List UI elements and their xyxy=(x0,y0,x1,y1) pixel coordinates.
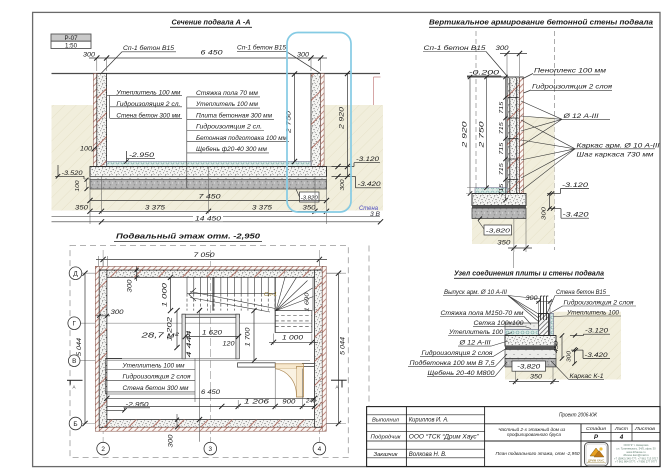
svg-text:Сетка 100х100: Сетка 100х100 xyxy=(474,320,525,327)
svg-text:А: А xyxy=(73,384,76,389)
svg-text:300: 300 xyxy=(496,45,510,52)
svg-text:3: 3 xyxy=(209,446,213,453)
svg-text:5 044: 5 044 xyxy=(341,336,347,355)
svg-text:Лист: Лист xyxy=(614,426,628,432)
svg-text:Узел соединения плиты и стены: Узел соединения плиты и стены подвала xyxy=(454,269,604,278)
svg-text:Стяжка пола 70 мм: Стяжка пола 70 мм xyxy=(196,91,258,97)
svg-text:2 920: 2 920 xyxy=(463,120,469,149)
svg-text:ООО “ТСК “Дрим Хаус”: ООО “ТСК “Дрим Хаус” xyxy=(409,434,480,441)
svg-text:-0.200: -0.200 xyxy=(469,69,500,76)
svg-text:2: 2 xyxy=(101,446,105,453)
svg-text:ДРИМ ХАУС: ДРИМ ХАУС xyxy=(588,459,604,463)
svg-text:4: 4 xyxy=(318,446,322,453)
svg-text:100: 100 xyxy=(80,145,93,152)
svg-text:План подвального этажа, отм -2: План подвального этажа, отм -2,950 xyxy=(496,451,580,457)
svg-text:120: 120 xyxy=(223,341,236,348)
svg-text:Листов: Листов xyxy=(634,426,656,432)
svg-text:4: 4 xyxy=(619,434,624,441)
svg-text:1 206: 1 206 xyxy=(244,398,270,405)
svg-text:Сп-1 бетон В15: Сп-1 бетон В15 xyxy=(237,45,287,52)
svg-text:Бетонная подготовка 100 мм: Бетонная подготовка 100 мм xyxy=(196,136,287,142)
svg-text:Стена бетон 300 мм: Стена бетон 300 мм xyxy=(123,386,189,392)
svg-text:7 050: 7 050 xyxy=(194,252,216,259)
svg-text:Подвальный этаж отм. -2,950: Подвальный этаж отм. -2,950 xyxy=(116,232,260,241)
svg-text:1 620: 1 620 xyxy=(202,329,223,336)
svg-text:Утеплитель 100: Утеплитель 100 xyxy=(448,329,504,336)
svg-text:-3.120: -3.120 xyxy=(356,156,379,163)
svg-text:14 450: 14 450 xyxy=(195,216,222,223)
svg-text:2 920: 2 920 xyxy=(339,106,346,130)
svg-text:Гидроизоляция 2 слоя: Гидроизоляция 2 слоя xyxy=(123,375,192,381)
svg-text:Подбетонка 100 мм В 7,5: Подбетонка 100 мм В 7,5 xyxy=(410,360,496,367)
svg-text:Стадия: Стадия xyxy=(586,426,606,432)
svg-text:Подрядчик: Подрядчик xyxy=(371,435,401,441)
svg-text:Ø 12 А-III: Ø 12 А-III xyxy=(562,113,599,120)
svg-text:Стена бетон В15: Стена бетон В15 xyxy=(556,289,607,296)
svg-text:715: 715 xyxy=(499,121,505,134)
svg-text:Выпуск арм. Ø 10 А-III: Выпуск арм. Ø 10 А-III xyxy=(444,289,507,296)
svg-text:300: 300 xyxy=(83,52,96,59)
svg-text:240: 240 xyxy=(305,398,316,404)
svg-text:-3,820: -3,820 xyxy=(517,365,541,371)
svg-text:Сп-1: Сп-1 xyxy=(264,292,277,298)
svg-text:Утеплитель 100 мм: Утеплитель 100 мм xyxy=(121,364,184,370)
svg-text:350: 350 xyxy=(303,204,317,211)
svg-text:-3.120: -3.120 xyxy=(562,182,589,189)
svg-text:Заказчик: Заказчик xyxy=(374,452,398,458)
svg-text:300: 300 xyxy=(111,309,125,316)
svg-text:Выполнил: Выполнил xyxy=(372,417,400,423)
svg-text:2 750: 2 750 xyxy=(480,120,486,149)
svg-text:Гидроизоляция 2 слоя: Гидроизоляция 2 слоя xyxy=(422,350,494,357)
svg-text:Плита бетонная 300 мм: Плита бетонная 300 мм xyxy=(196,113,272,119)
svg-text:450: 450 xyxy=(554,340,560,353)
svg-text:Щебень 20-40 М800: Щебень 20-40 М800 xyxy=(428,370,496,377)
svg-text:715: 715 xyxy=(499,101,505,114)
svg-text:Утеплитель 100 мм: Утеплитель 100 мм xyxy=(195,102,258,108)
svg-text:-3,820: -3,820 xyxy=(486,229,511,235)
svg-text:5 044: 5 044 xyxy=(77,337,83,356)
svg-text:Кириллов И. А.: Кириллов И. А. xyxy=(409,416,449,423)
svg-text:1:50: 1:50 xyxy=(65,42,78,49)
svg-text:Сечение подвала А -А: Сечение подвала А -А xyxy=(172,18,251,27)
svg-text:Гидроизоляция 2 слоя: Гидроизоляция 2 слоя xyxy=(532,83,613,91)
svg-text:Утеплитель 100: Утеплитель 100 xyxy=(566,310,620,317)
svg-text:350: 350 xyxy=(530,374,542,381)
svg-text:-3.420: -3.420 xyxy=(563,212,590,219)
svg-text:Гидроизоляция 2 сл.: Гидроизоляция 2 сл. xyxy=(116,102,180,108)
svg-text:Гидроизоляция 2 слоя: Гидроизоляция 2 слоя xyxy=(564,300,635,307)
svg-text:Д: Д xyxy=(73,271,78,278)
svg-text:-3.520: -3.520 xyxy=(62,170,83,177)
svg-text:715: 715 xyxy=(499,162,505,175)
svg-text:Проект 2006-КЖ: Проект 2006-КЖ xyxy=(559,413,598,419)
svg-text:350: 350 xyxy=(75,204,89,211)
svg-text:Сп-1 бетон В15: Сп-1 бетон В15 xyxy=(424,44,487,52)
svg-text:1 600: 1 600 xyxy=(305,291,311,311)
svg-text:Р-07: Р-07 xyxy=(64,35,78,42)
svg-text:1 000: 1 000 xyxy=(163,282,169,307)
svg-text:300: 300 xyxy=(297,52,310,59)
svg-text:715: 715 xyxy=(499,183,505,196)
svg-text:100: 100 xyxy=(75,180,81,192)
svg-text:-2.950: -2.950 xyxy=(126,401,149,408)
svg-text:Каркас К-1: Каркас К-1 xyxy=(570,373,604,380)
svg-text:1 000: 1 000 xyxy=(282,335,304,342)
svg-text:А: А xyxy=(336,384,339,389)
svg-text:300: 300 xyxy=(128,279,134,293)
svg-text:28,7 м²: 28,7 м² xyxy=(140,333,180,340)
svg-text:Г: Г xyxy=(72,321,76,328)
svg-text:6 450: 6 450 xyxy=(201,50,224,57)
svg-text:Каркас арм. Ø 10 А-III: Каркас арм. Ø 10 А-III xyxy=(577,142,660,149)
svg-text:3 В: 3 В xyxy=(370,211,381,218)
svg-text:4 444: 4 444 xyxy=(187,329,193,357)
svg-text:-3.420: -3.420 xyxy=(585,352,608,359)
svg-text:профилированного бруса: профилированного бруса xyxy=(507,432,561,438)
svg-text:В: В xyxy=(72,358,76,365)
svg-text:Сп-1 бетон В15: Сп-1 бетон В15 xyxy=(123,45,175,52)
svg-text:6 450: 6 450 xyxy=(201,389,221,396)
svg-text:350: 350 xyxy=(497,240,511,247)
svg-text:3 375: 3 375 xyxy=(252,204,273,211)
svg-text:3 375: 3 375 xyxy=(145,204,166,211)
svg-text:+7 961 864 5777; +7 956 277 97: +7 961 864 5777; +7 956 277 9777 xyxy=(615,460,658,464)
svg-text:Шаг каркаса 730 мм: Шаг каркаса 730 мм xyxy=(577,152,655,159)
svg-text:300: 300 xyxy=(169,434,175,448)
svg-text:900: 900 xyxy=(282,398,296,405)
svg-text:1 700: 1 700 xyxy=(246,327,252,347)
svg-text:Б: Б xyxy=(73,421,77,428)
svg-text:300: 300 xyxy=(567,350,573,362)
svg-text:-3.420: -3.420 xyxy=(358,181,381,188)
svg-text:7 450: 7 450 xyxy=(199,193,222,200)
svg-text:715: 715 xyxy=(499,142,505,155)
svg-text:300: 300 xyxy=(542,206,548,220)
svg-text:Щебень ф20-40 300 мм: Щебень ф20-40 300 мм xyxy=(196,147,267,153)
svg-text:Вертикальное армирование бетон: Вертикальное армирование бетонной стены … xyxy=(429,18,653,27)
svg-text:Гидроизоляция 2 сл.: Гидроизоляция 2 сл. xyxy=(196,125,262,131)
svg-text:Частный 2-х этажный дом из: Частный 2-х этажный дом из xyxy=(498,426,566,433)
svg-text:Пеноплекс 100 мм: Пеноплекс 100 мм xyxy=(534,68,607,75)
svg-text:Волкова Н. В.: Волкова Н. В. xyxy=(409,451,447,458)
svg-text:300: 300 xyxy=(340,179,346,191)
svg-text:-3.120: -3.120 xyxy=(585,328,608,335)
svg-text:-2.950: -2.950 xyxy=(129,152,155,159)
svg-text:Ø 12 А-III: Ø 12 А-III xyxy=(458,340,491,347)
svg-text:Стяжка пола М150-70 мм: Стяжка пола М150-70 мм xyxy=(441,310,525,317)
